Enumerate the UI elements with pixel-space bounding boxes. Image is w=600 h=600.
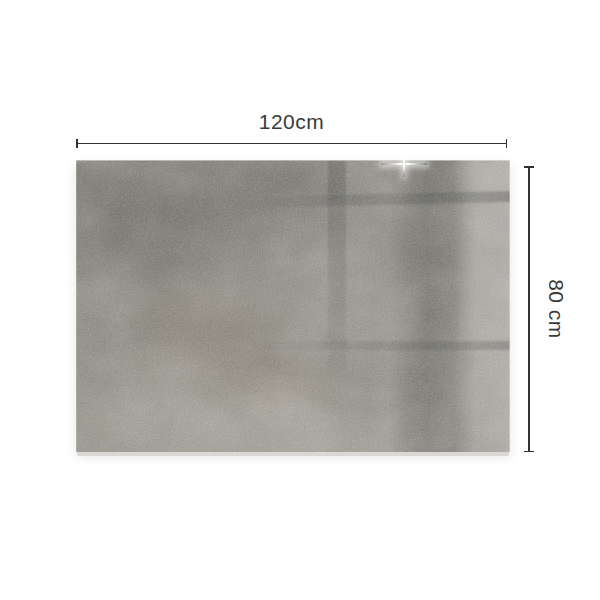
width-dimension-line: [76, 139, 507, 148]
glass-edge-highlight: [76, 160, 510, 452]
height-dimension-label: 80 cm: [544, 279, 568, 339]
height-dimension-line: [524, 166, 534, 452]
product-dimension-diagram: 120cm 80 cm: [0, 0, 600, 600]
width-dimension-rule: [76, 143, 507, 145]
height-dimension-tick-bottom: [524, 451, 534, 453]
width-dimension-label: 120cm: [76, 110, 507, 134]
width-dimension-tick-right: [506, 139, 508, 148]
glass-panel-image: [76, 160, 510, 452]
glass-bottom-edge: [77, 452, 509, 456]
height-dimension-rule: [528, 166, 530, 452]
